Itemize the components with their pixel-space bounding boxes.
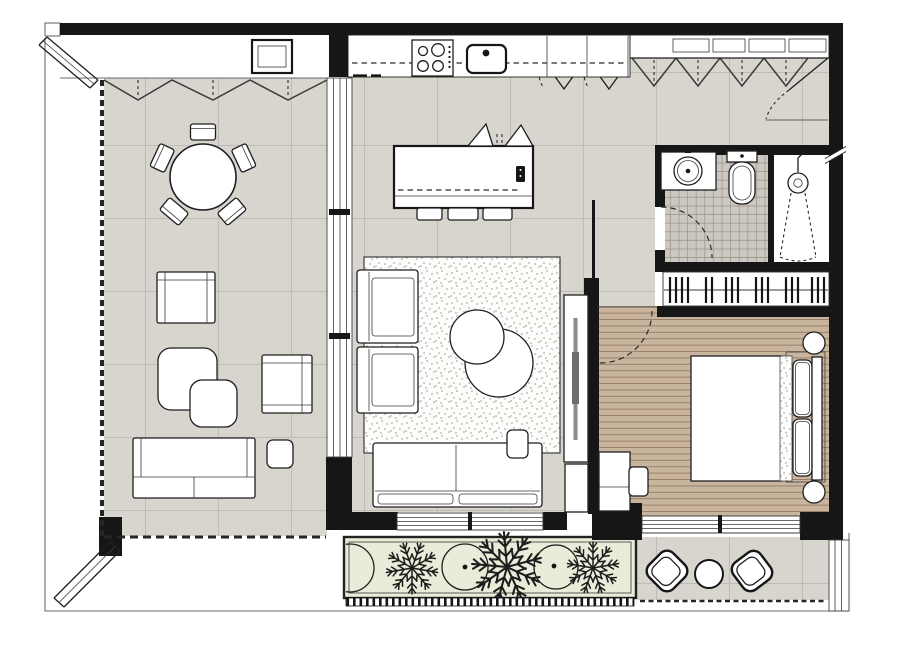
side-table <box>507 430 528 458</box>
balcony-railing <box>829 540 849 611</box>
shower-floor <box>774 152 829 262</box>
dining-table <box>170 144 236 210</box>
tv-cabinet <box>565 464 588 512</box>
floor-plan-svg <box>0 0 900 649</box>
armchair <box>357 270 418 343</box>
armchair <box>262 355 312 413</box>
bench-sofa <box>133 438 255 498</box>
floor-plan-image <box>0 0 900 649</box>
dining-chair <box>191 124 216 140</box>
kitchen-sink <box>467 45 506 73</box>
headboard <box>812 357 822 480</box>
kitchen-island <box>394 146 533 208</box>
armchair <box>157 272 215 323</box>
round-coffee-table <box>450 310 504 364</box>
planter-box <box>326 523 636 610</box>
duvet-edge <box>780 356 792 481</box>
stool <box>629 467 648 496</box>
upper-cabinets <box>630 35 829 58</box>
vanity-basin <box>661 149 716 190</box>
bed-duvet <box>691 356 782 481</box>
nightstand <box>803 481 825 503</box>
nightstand <box>803 332 825 354</box>
coffee-table <box>190 380 237 427</box>
wardrobe <box>663 272 829 306</box>
toilet <box>727 151 757 204</box>
side-table <box>267 440 293 468</box>
round-table <box>695 560 723 588</box>
planter-edge-strip <box>346 598 634 606</box>
bar-stools <box>417 208 512 220</box>
glass-partition <box>327 78 352 457</box>
cooktop <box>412 40 453 76</box>
armchair <box>357 347 418 413</box>
tv-console <box>564 295 588 512</box>
